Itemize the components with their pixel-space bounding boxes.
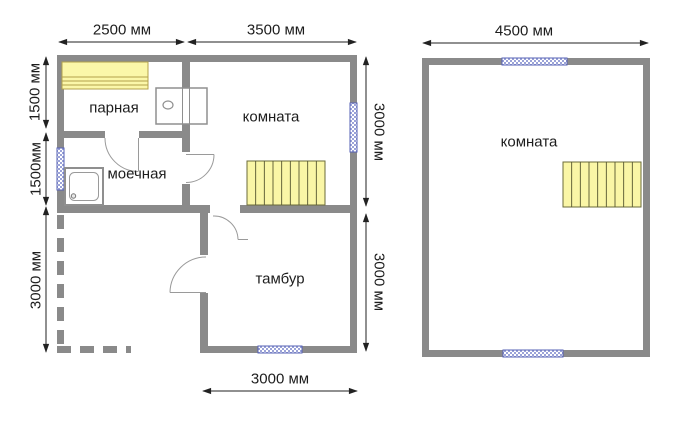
stove	[156, 88, 207, 124]
wall-segment	[202, 346, 258, 353]
room-label-moechnaya: моечная	[107, 167, 166, 182]
wall-segment	[563, 350, 650, 357]
dimension-arrows	[46, 42, 648, 391]
dim-label-1500-parnaya: 1500 мм	[28, 63, 43, 121]
wall-segment	[57, 55, 357, 62]
dim-label-3000-bottom: 3000 мм	[251, 372, 309, 387]
dim-label-3500: 3500 мм	[247, 23, 305, 38]
wall-segment	[350, 152, 357, 353]
room-label-komnata-second-floor: комната	[501, 135, 558, 150]
wall-segment	[182, 62, 190, 88]
room-label-komnata-first-floor: комната	[243, 110, 300, 125]
window	[350, 103, 357, 152]
dim-label-3000-tambur: 3000 мм	[372, 253, 387, 311]
door-moechnaya	[186, 155, 214, 183]
wall-segment	[643, 58, 650, 357]
wall-segment	[240, 205, 357, 213]
wall-segment	[302, 346, 357, 353]
floor-plan-drawing	[0, 0, 700, 427]
room-label-tambur: тамбур	[255, 272, 304, 287]
dim-label-2500: 2500 мм	[93, 23, 151, 38]
wall-segment	[422, 58, 502, 65]
stairs-first-floor	[247, 161, 325, 205]
stairs-second-floor	[563, 162, 641, 207]
door-tambur-inner	[213, 216, 248, 240]
wall-segment	[422, 58, 429, 357]
wall-segment	[350, 55, 357, 103]
dim-label-1500-moechnaya: 1500мм	[29, 142, 44, 196]
wall-segment	[57, 131, 105, 138]
dim-label-4500: 4500 мм	[495, 24, 553, 39]
window	[502, 58, 567, 65]
floor-plan-canvas: парная моечная комната тамбур комната 25…	[0, 0, 700, 427]
wall-segment	[200, 293, 208, 353]
sauna-bench	[62, 62, 148, 89]
wall-segment	[200, 213, 208, 255]
doors	[105, 138, 248, 293]
window	[503, 350, 563, 357]
wall-segment	[57, 205, 210, 213]
room-label-parnaya: парная	[89, 101, 139, 116]
dim-label-3000-porch: 3000 мм	[29, 251, 44, 309]
door-tambur-exterior	[170, 257, 206, 293]
wall-segment	[182, 124, 190, 152]
dim-label-3000-komnata: 3000 мм	[372, 103, 387, 161]
wall-segment	[422, 350, 503, 357]
window	[258, 346, 302, 353]
window	[57, 148, 64, 190]
porch-dashed-outline	[57, 215, 131, 353]
wall-segment	[567, 58, 650, 65]
shower-tray	[65, 168, 103, 205]
